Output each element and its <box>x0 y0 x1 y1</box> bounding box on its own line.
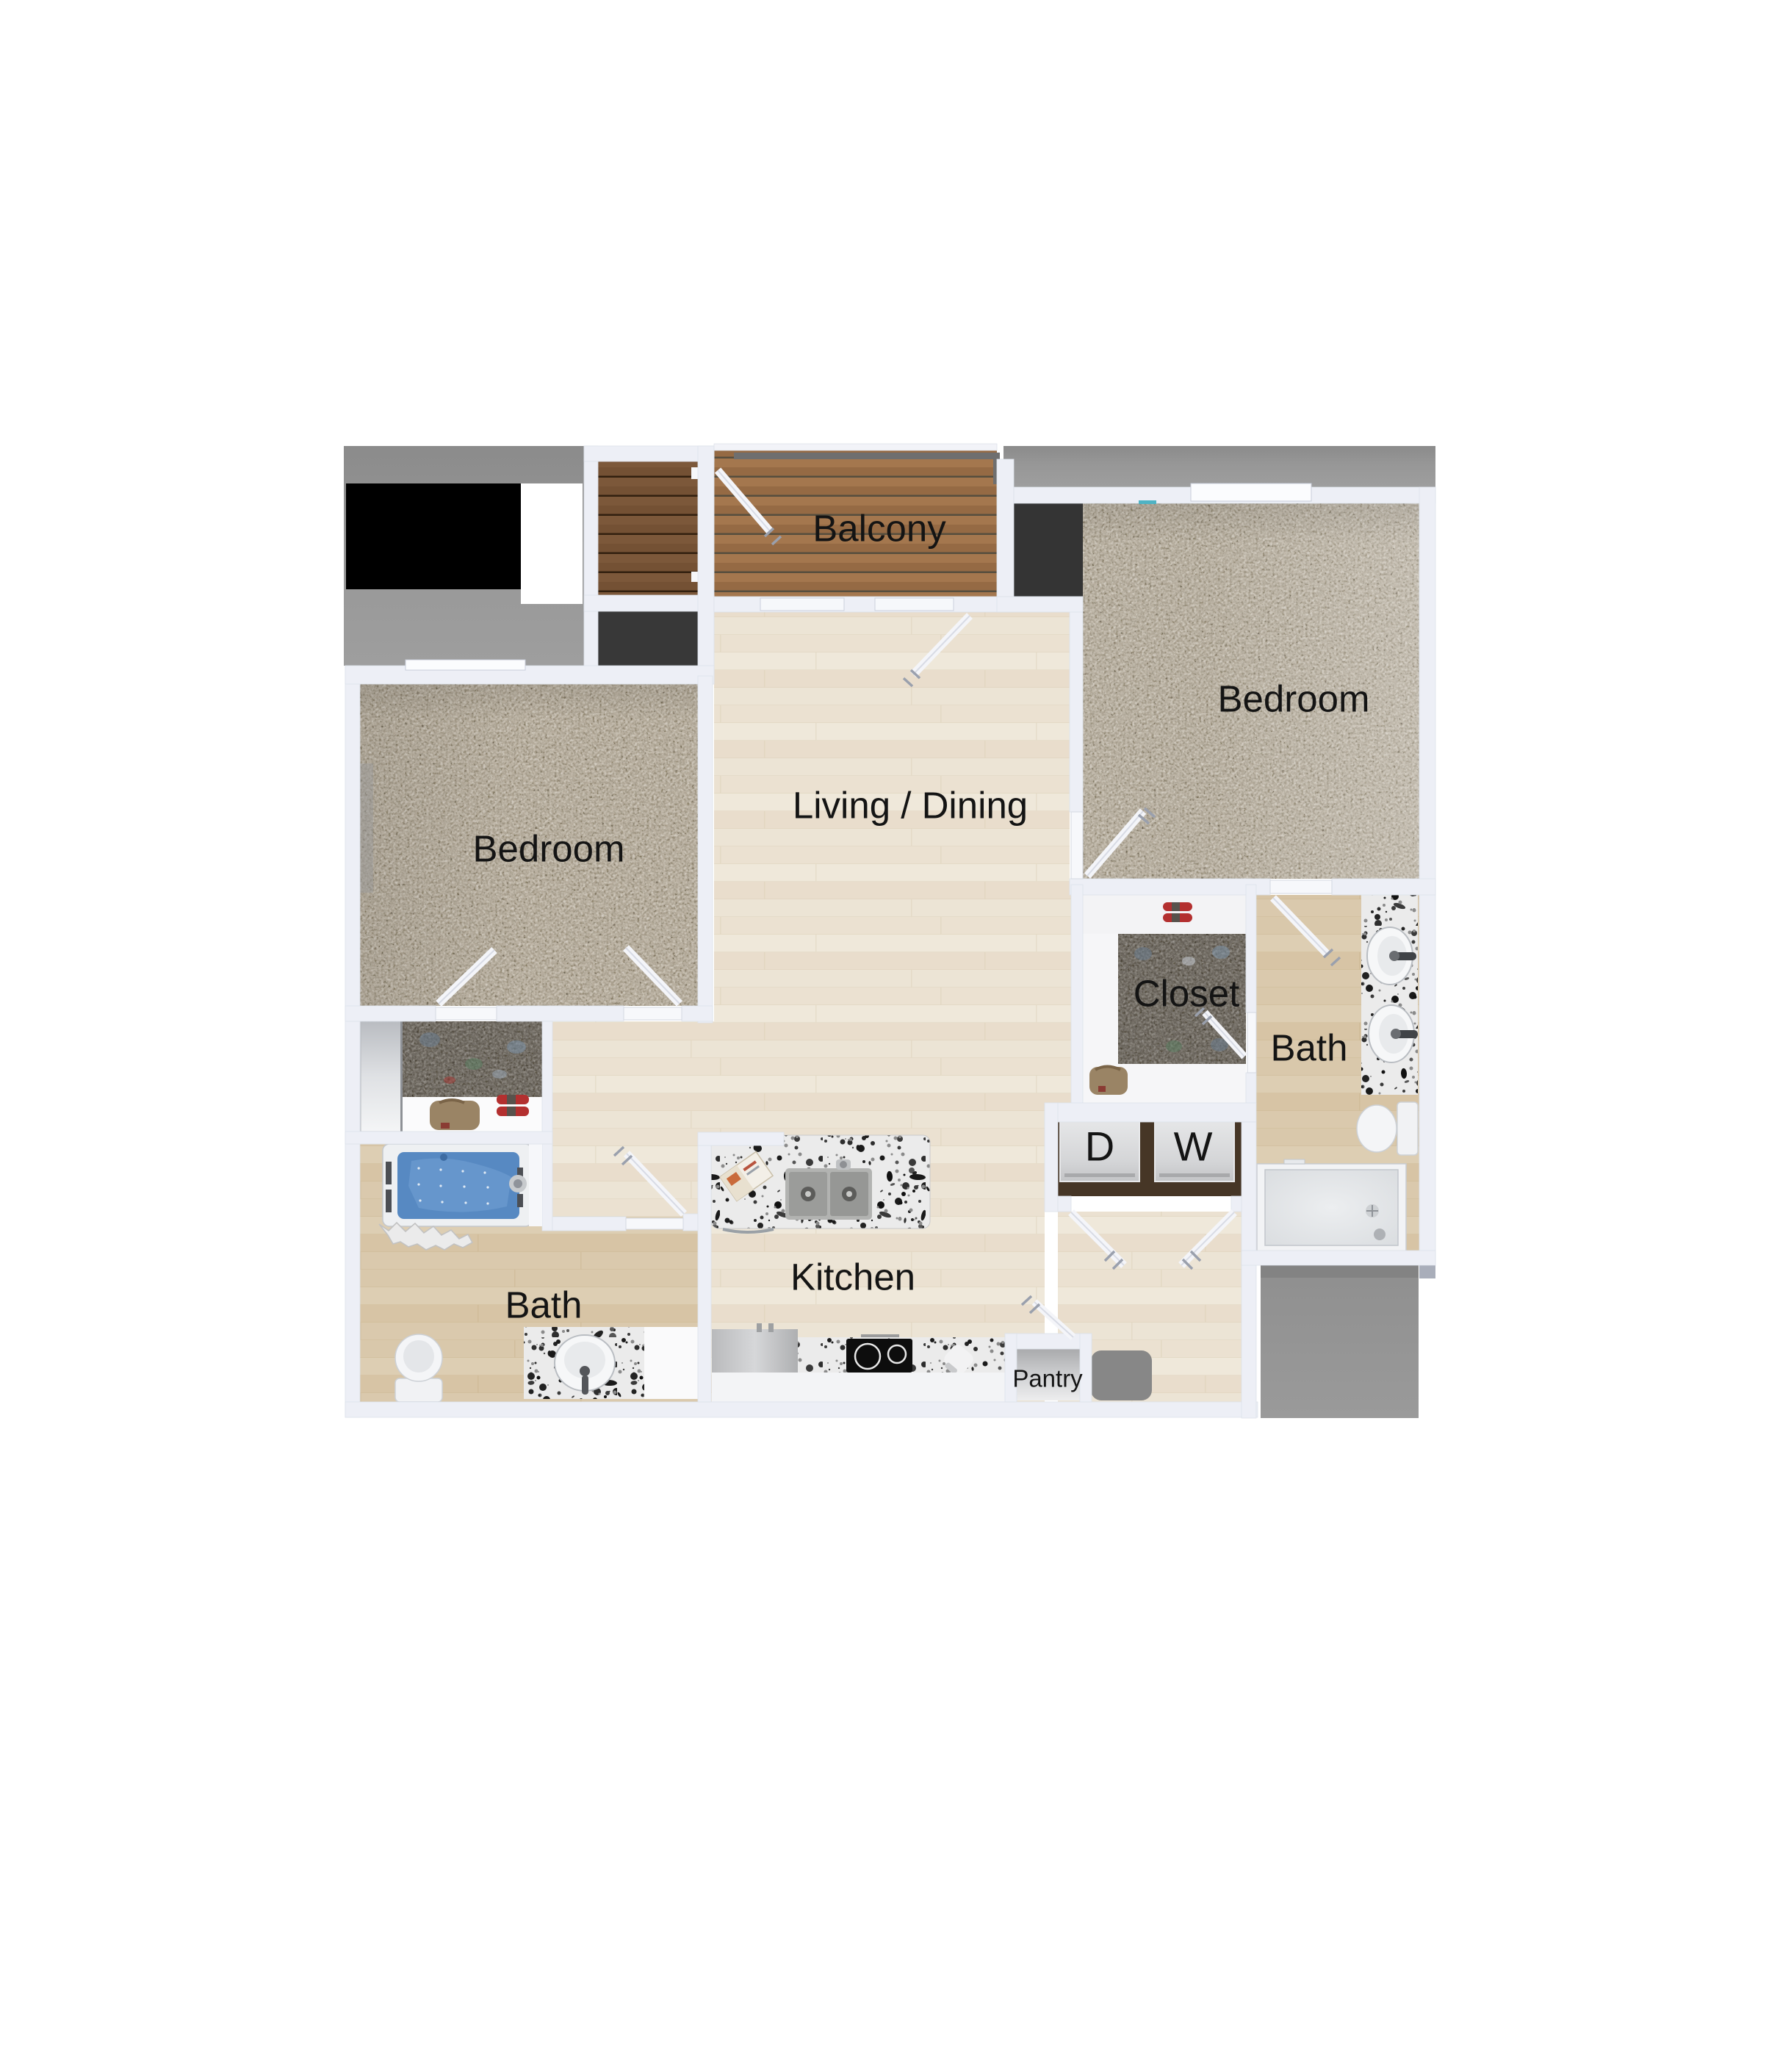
svg-text:Balcony: Balcony <box>812 508 946 550</box>
svg-text:Living / Dining: Living / Dining <box>793 785 1028 827</box>
svg-text:W: W <box>1174 1123 1213 1170</box>
svg-text:Closet: Closet <box>1134 973 1240 1015</box>
svg-text:D: D <box>1085 1123 1114 1170</box>
svg-text:Kitchen: Kitchen <box>790 1256 915 1298</box>
svg-text:Bath: Bath <box>505 1284 583 1326</box>
svg-text:Bedroom: Bedroom <box>473 828 625 870</box>
svg-text:Bath: Bath <box>1271 1027 1348 1069</box>
svg-text:Pantry: Pantry <box>1012 1365 1083 1392</box>
svg-text:Bedroom: Bedroom <box>1218 678 1370 720</box>
